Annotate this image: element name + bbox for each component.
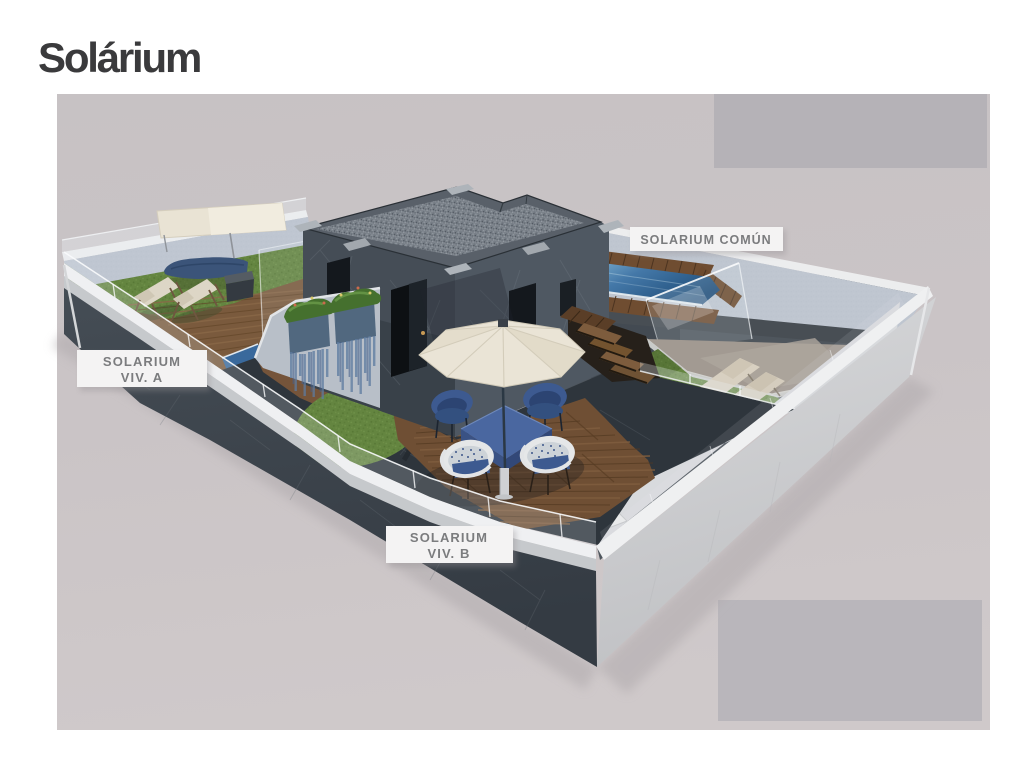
svg-text:SOLARIUM: SOLARIUM	[410, 530, 488, 545]
svg-text:VIV. A: VIV. A	[121, 370, 164, 385]
svg-text:VIV. B: VIV. B	[428, 546, 471, 561]
svg-text:SOLARIUM: SOLARIUM	[103, 354, 181, 369]
svg-text:SOLARIUM COMÚN: SOLARIUM COMÚN	[640, 232, 771, 247]
